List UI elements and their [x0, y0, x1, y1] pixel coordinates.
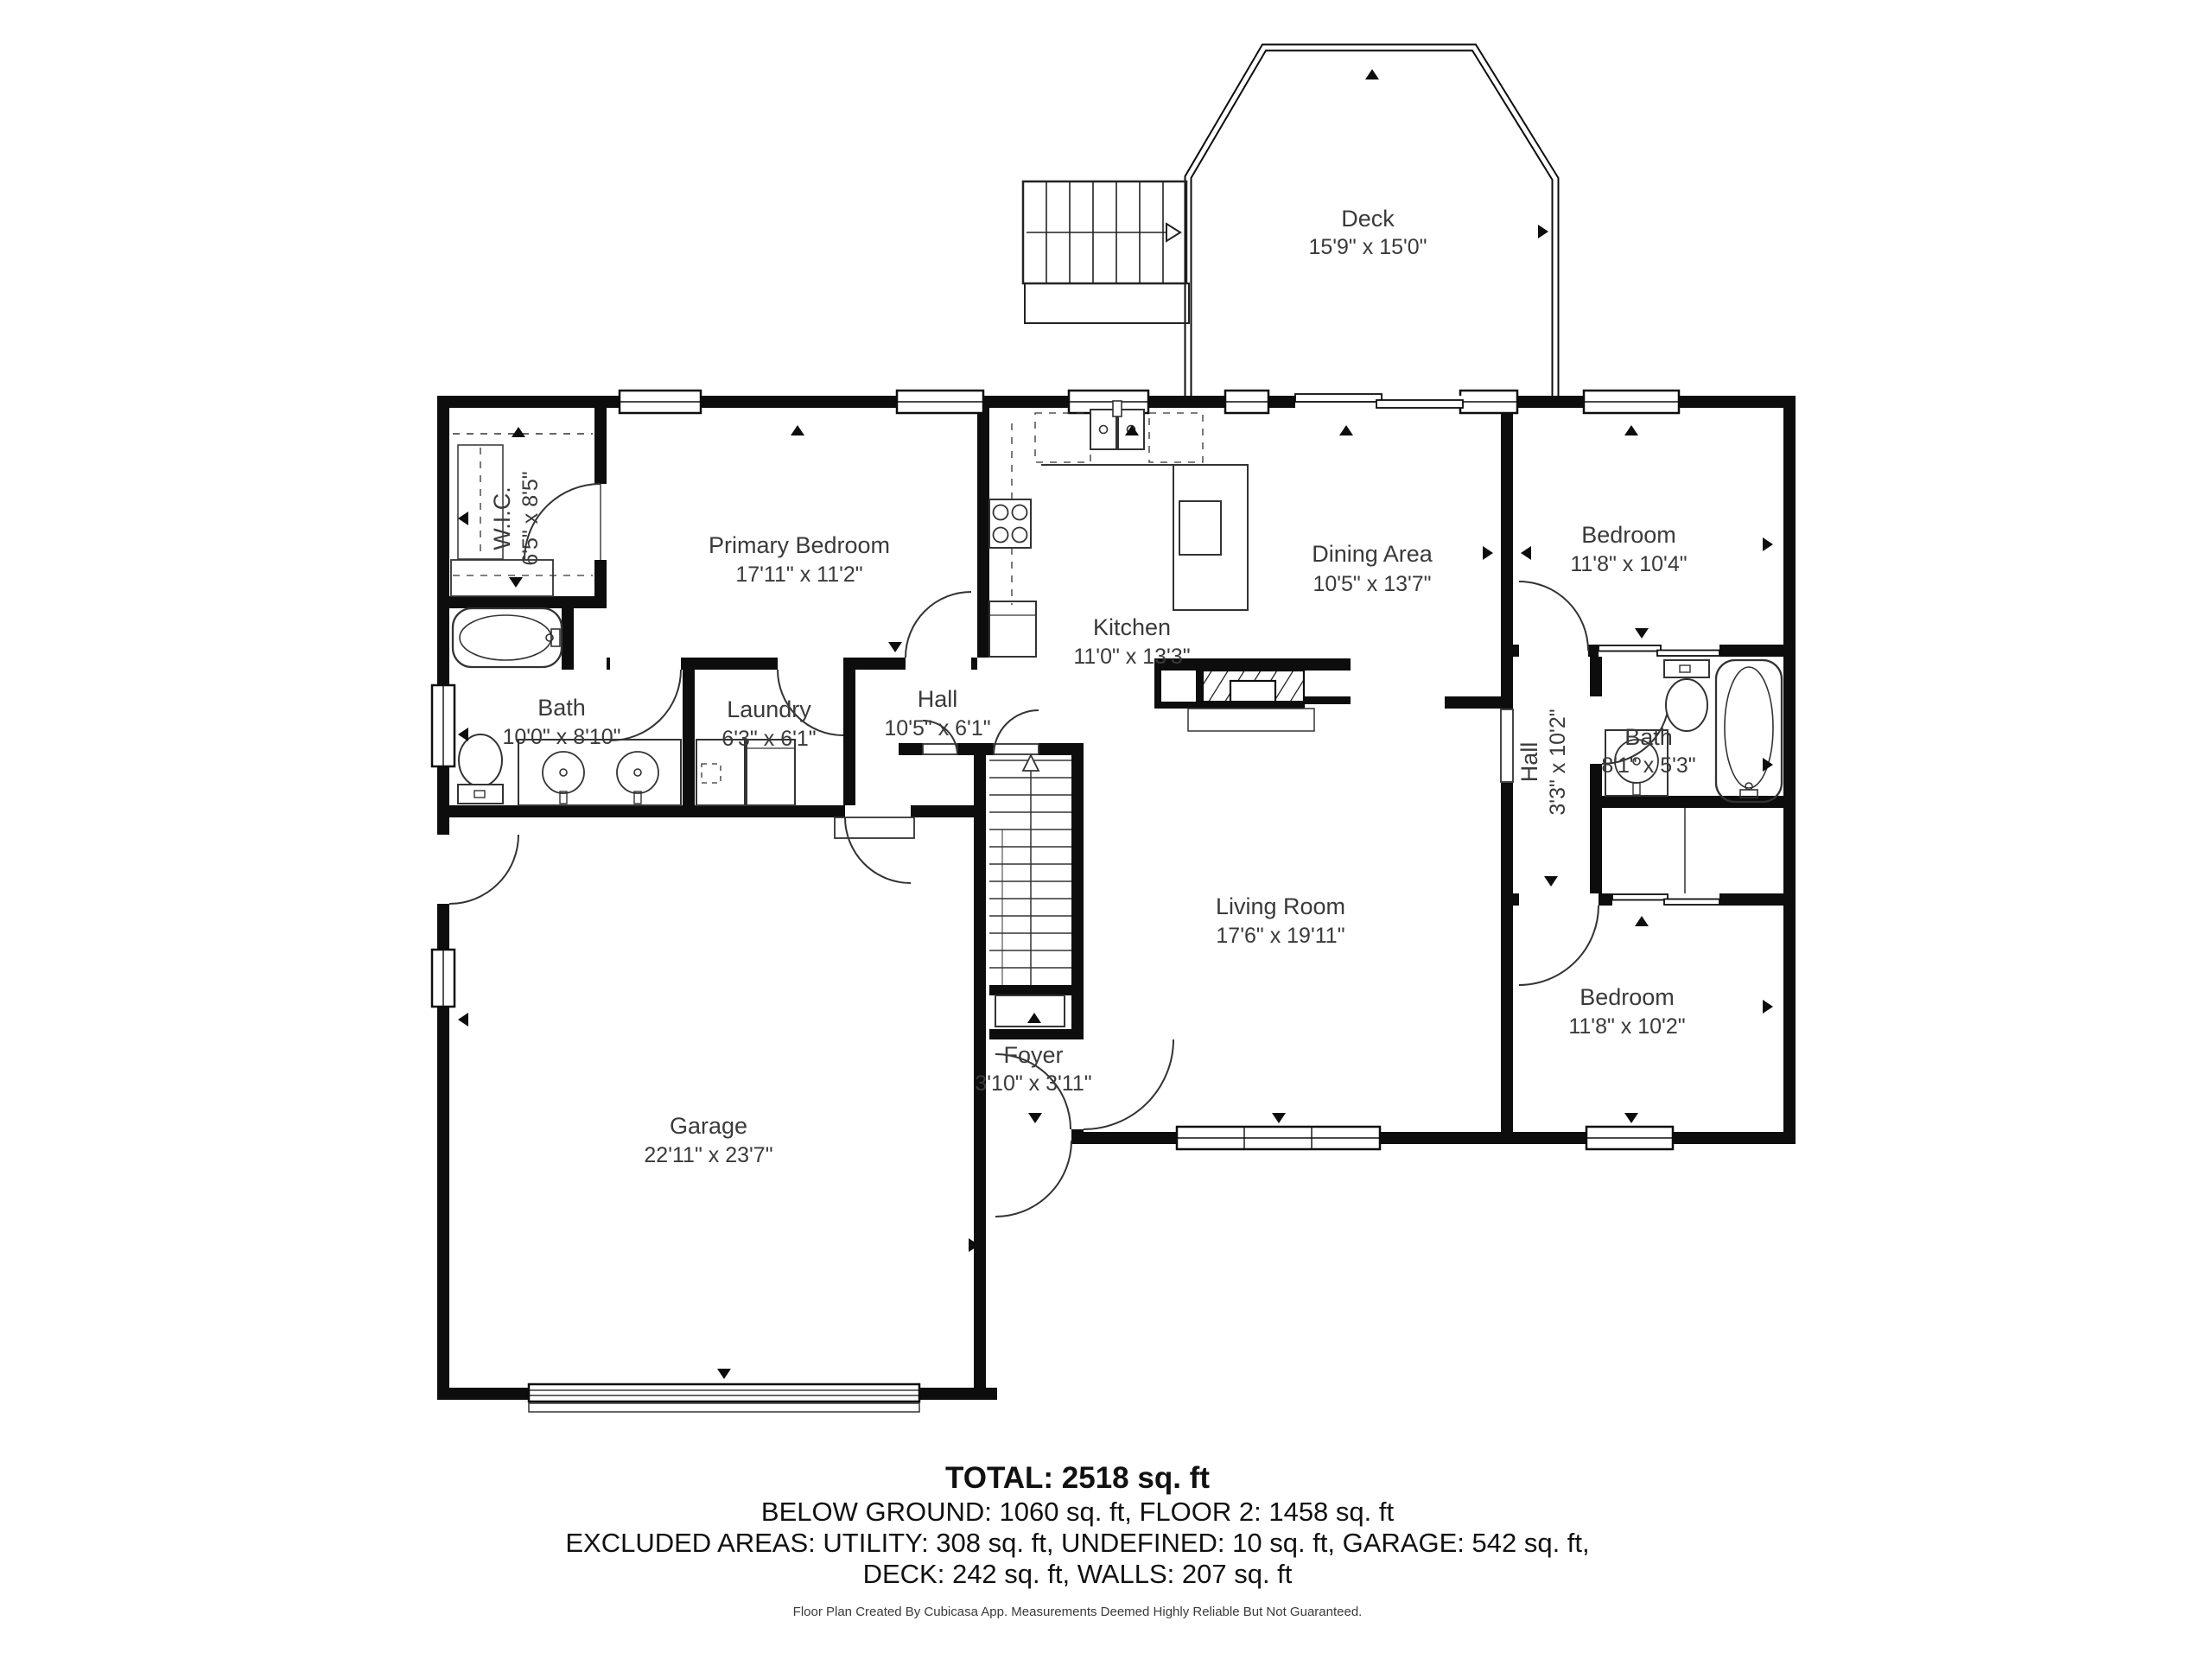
svg-text:15'9" x 15'0": 15'9" x 15'0"	[1308, 235, 1427, 259]
svg-text:8'1" x 5'3": 8'1" x 5'3"	[1601, 753, 1695, 778]
svg-text:Dining Area: Dining Area	[1312, 541, 1433, 567]
summary-block: TOTAL: 2518 sq. ft BELOW GROUND: 1060 sq…	[565, 1461, 1589, 1619]
svg-text:Kitchen: Kitchen	[1093, 614, 1171, 640]
room-label-wic: W.I.C. 6'5" x 8'5"	[489, 471, 543, 565]
svg-text:Laundry: Laundry	[727, 696, 811, 722]
floorplan-svg: Deck 15'9" x 15'0" W.I.C. 6'5" x 8'5" Pr…	[0, 0, 2212, 1659]
room-label-bedroom-bottom: Bedroom 11'8" x 10'2"	[1568, 984, 1685, 1039]
svg-text:10'5" x 6'1": 10'5" x 6'1"	[884, 716, 990, 741]
svg-text:6'5" x 8'5": 6'5" x 8'5"	[518, 471, 543, 565]
floorplan-page: Deck 15'9" x 15'0" W.I.C. 6'5" x 8'5" Pr…	[0, 0, 2212, 1659]
svg-text:Hall: Hall	[918, 686, 958, 712]
stove	[989, 499, 1031, 548]
closet-divider-lines	[835, 808, 1685, 893]
refrigerator	[989, 601, 1036, 657]
room-label-dining-area: Dining Area 10'5" x 13'7"	[1312, 541, 1433, 596]
svg-text:10'0" x 8'10": 10'0" x 8'10"	[502, 725, 620, 749]
svg-text:11'8" x 10'4": 11'8" x 10'4"	[1570, 552, 1687, 576]
room-label-kitchen: Kitchen 11'0" x 13'3"	[1073, 614, 1190, 669]
svg-text:17'11" x 11'2": 17'11" x 11'2"	[735, 563, 862, 587]
svg-text:Living Room: Living Room	[1216, 893, 1345, 919]
room-label-hall-right: Hall 3'3" x 10'2"	[1516, 709, 1570, 815]
svg-text:Primary Bedroom: Primary Bedroom	[709, 532, 890, 558]
svg-text:Deck: Deck	[1341, 206, 1395, 232]
svg-text:3'10" x 3'11": 3'10" x 3'11"	[975, 1071, 1091, 1096]
svg-text:Bedroom: Bedroom	[1581, 522, 1676, 548]
svg-text:17'6" x 19'11": 17'6" x 19'11"	[1216, 924, 1344, 948]
svg-text:Hall: Hall	[1516, 742, 1542, 783]
fireplace	[1154, 658, 1351, 731]
room-label-bedroom-top: Bedroom 11'8" x 10'4"	[1570, 522, 1687, 576]
excluded-areas-text: EXCLUDED AREAS: UTILITY: 308 sq. ft, UND…	[565, 1528, 1589, 1558]
svg-text:Foyer: Foyer	[1003, 1042, 1063, 1068]
room-label-living-room: Living Room 17'6" x 19'11"	[1216, 893, 1345, 948]
room-label-laundry: Laundry 6'3" x 6'1"	[721, 696, 816, 751]
door-arcs	[449, 484, 1669, 1217]
svg-text:Bath: Bath	[1624, 724, 1673, 750]
deck-stairs	[1023, 181, 1189, 323]
svg-text:6'3" x 6'1": 6'3" x 6'1"	[721, 727, 816, 751]
toilet-left	[458, 734, 503, 804]
total-area-text: TOTAL: 2518 sq. ft	[945, 1461, 1210, 1495]
room-label-primary-bedroom: Primary Bedroom 17'11" x 11'2"	[709, 532, 890, 587]
svg-text:22'11" x 23'7": 22'11" x 23'7"	[644, 1143, 772, 1167]
svg-text:10'5" x 13'7": 10'5" x 13'7"	[1313, 572, 1431, 596]
garage-door	[529, 1384, 919, 1412]
svg-text:3'3" x 10'2": 3'3" x 10'2"	[1546, 709, 1570, 815]
floors-area-text: BELOW GROUND: 1060 sq. ft, FLOOR 2: 1458…	[761, 1497, 1395, 1527]
toilet-right	[1664, 660, 1709, 731]
room-label-bath-left: Bath 10'0" x 8'10"	[502, 695, 620, 749]
excluded-areas-text-2: DECK: 242 sq. ft, WALLS: 207 sq. ft	[863, 1559, 1293, 1589]
svg-text:Bedroom: Bedroom	[1580, 984, 1675, 1010]
room-label-garage: Garage 22'11" x 23'7"	[644, 1113, 772, 1167]
disclaimer-text: Floor Plan Created By Cubicasa App. Meas…	[793, 1605, 1363, 1619]
room-label-hall-center: Hall 10'5" x 6'1"	[884, 686, 990, 741]
svg-text:11'0" x 13'3": 11'0" x 13'3"	[1073, 645, 1190, 669]
svg-text:W.I.C.: W.I.C.	[489, 486, 515, 550]
room-label-deck: Deck 15'9" x 15'0"	[1308, 206, 1427, 259]
bathtub-left	[453, 608, 562, 667]
bathtub-right	[1716, 660, 1782, 802]
svg-text:Garage: Garage	[670, 1113, 747, 1139]
svg-text:11'8" x 10'2": 11'8" x 10'2"	[1568, 1014, 1685, 1039]
svg-text:Bath: Bath	[537, 695, 586, 721]
room-label-bath-right: Bath 8'1" x 5'3"	[1601, 724, 1695, 778]
double-vanity-left	[518, 740, 681, 805]
sliding-door-deck	[1295, 394, 1463, 408]
room-labels: Deck 15'9" x 15'0" W.I.C. 6'5" x 8'5" Pr…	[489, 206, 1696, 1167]
